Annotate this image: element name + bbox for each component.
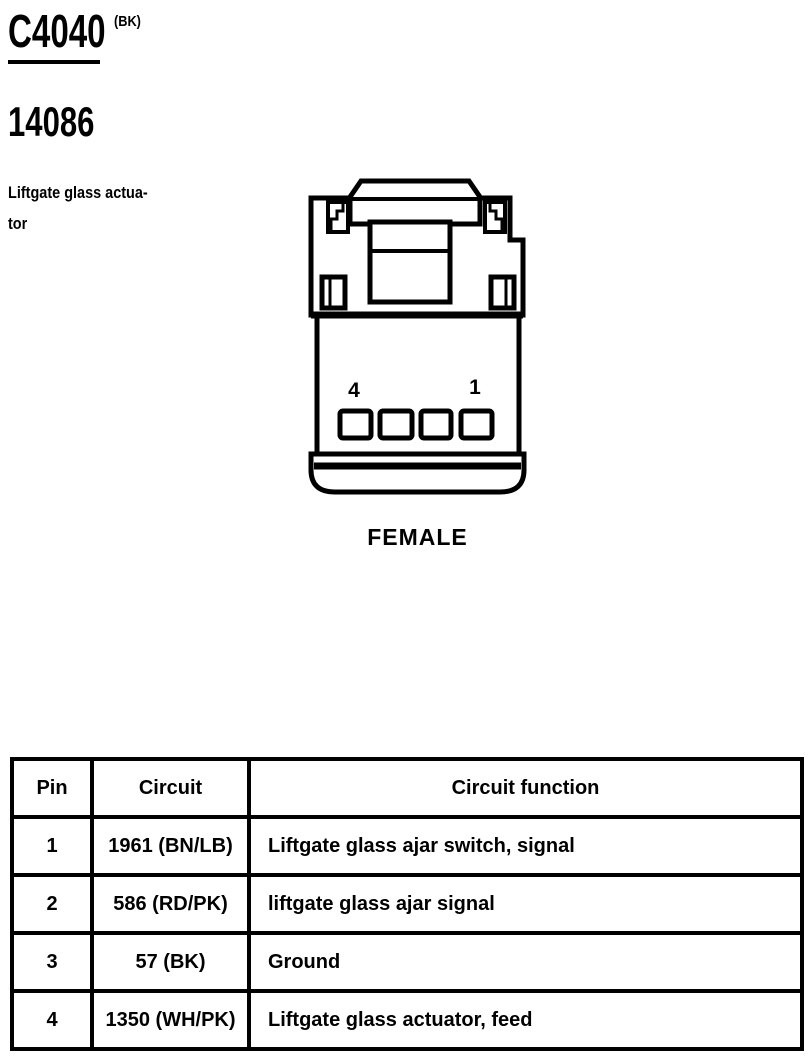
pinout-table: Pin Circuit Circuit function 1 1961 (BN/…: [10, 757, 804, 1051]
connector-id-heading: C4040: [8, 4, 106, 58]
function-cell: Liftgate glass actuator, feed: [249, 991, 802, 1049]
component-name-line-2: tor: [8, 208, 148, 239]
part-number-heading: 14086: [8, 98, 94, 146]
table-row: 4 1350 (WH/PK) Liftgate glass actuator, …: [12, 991, 802, 1049]
pin-cavity-1: [461, 411, 492, 438]
pin-cell: 4: [12, 991, 92, 1049]
circuit-cell: 1961 (BN/LB): [92, 817, 249, 875]
table-row: 1 1961 (BN/LB) Liftgate glass ajar switc…: [12, 817, 802, 875]
table-row: 2 586 (RD/PK) liftgate glass ajar signal: [12, 875, 802, 933]
circuit-cell: 586 (RD/PK): [92, 875, 249, 933]
pin-label-1: 1: [469, 376, 481, 399]
connector-gender-label: FEMALE: [300, 524, 535, 551]
pin-cell: 3: [12, 933, 92, 991]
connector-base-cap: [311, 454, 524, 492]
pin-cell: 2: [12, 875, 92, 933]
connector-diagram: 4 1: [300, 166, 535, 508]
component-name: Liftgate glass actua- tor: [8, 177, 148, 239]
component-name-line-1: Liftgate glass actua-: [8, 177, 148, 208]
function-cell: liftgate glass ajar signal: [249, 875, 802, 933]
pin-column-header: Pin: [12, 759, 92, 817]
circuit-cell: 57 (BK): [92, 933, 249, 991]
table-header-row: Pin Circuit Circuit function: [12, 759, 802, 817]
center-key-block: [370, 222, 450, 302]
connector-latch-tab: [350, 181, 480, 224]
pin-cavity-2: [421, 411, 451, 438]
heading-underline: [8, 60, 100, 64]
pin-cavity-3: [380, 411, 412, 438]
left-side-slot: [322, 277, 345, 308]
function-cell: Liftgate glass ajar switch, signal: [249, 817, 802, 875]
connector-color-code: (BK): [114, 13, 141, 30]
function-cell: Ground: [249, 933, 802, 991]
circuit-column-header: Circuit: [92, 759, 249, 817]
pin-cavity-4: [340, 411, 371, 438]
right-side-slot: [491, 277, 514, 308]
circuit-cell: 1350 (WH/PK): [92, 991, 249, 1049]
pin-cell: 1: [12, 817, 92, 875]
table-row: 3 57 (BK) Ground: [12, 933, 802, 991]
page: C4040 (BK) 14086 Liftgate glass actua- t…: [0, 0, 811, 1064]
pin-label-4: 4: [348, 379, 360, 402]
circuit-function-column-header: Circuit function: [249, 759, 802, 817]
